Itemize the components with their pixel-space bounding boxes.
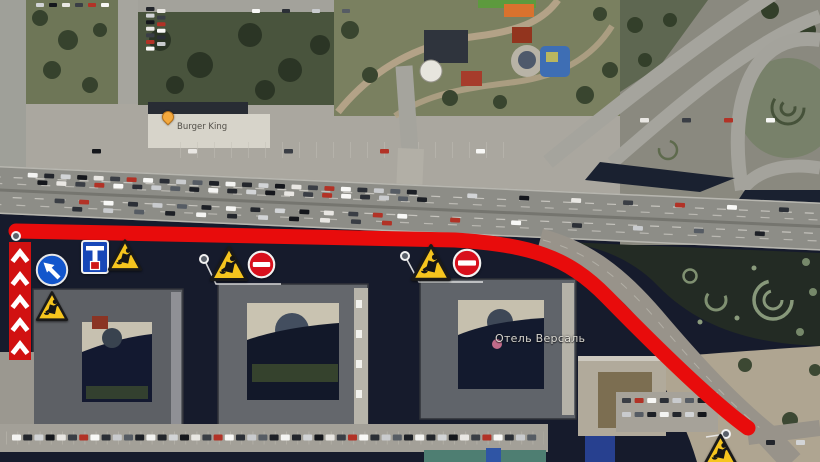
no-entry-sign-2 <box>452 248 482 278</box>
roadworks-sign-5 <box>702 433 739 462</box>
no-entry-sign-1 <box>247 250 276 279</box>
apartment-block-3 <box>420 279 576 419</box>
satellite-imagery <box>0 0 820 462</box>
roadworks-sign-3 <box>209 245 249 283</box>
poi-label: Burger King <box>177 122 227 132</box>
roadworks-sign-2 <box>35 290 69 323</box>
keep-left-sign <box>35 253 69 287</box>
park-area <box>334 0 624 116</box>
hotel-label: Отель Версаль <box>495 332 585 345</box>
roadworks-sign-1 <box>107 238 143 273</box>
detour-scheme-sign <box>81 240 109 274</box>
roadworks-map: Burger King Отель Версаль <box>0 0 820 462</box>
roadworks-sign-4 <box>410 243 452 283</box>
apartment-block-2 <box>218 284 368 430</box>
